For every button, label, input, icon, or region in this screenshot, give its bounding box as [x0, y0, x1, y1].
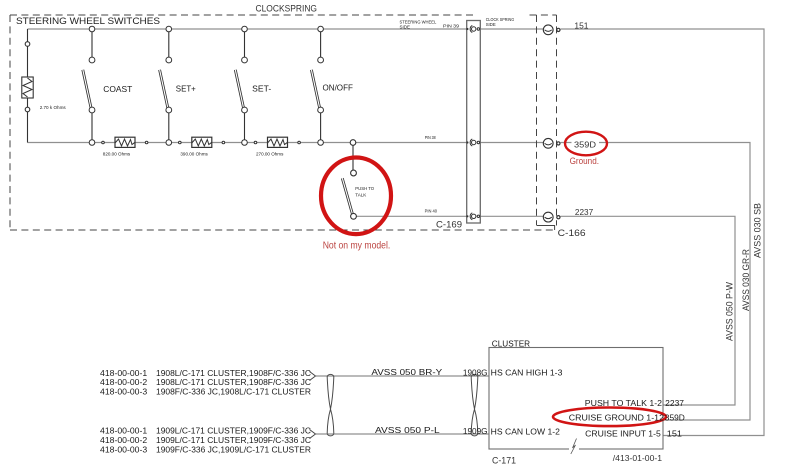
svg-text:/413-01-00-1: /413-01-00-1 — [613, 453, 662, 463]
svg-text:C-169: C-169 — [436, 220, 462, 230]
svg-text:SIDE: SIDE — [486, 22, 496, 27]
svg-text:Ground.: Ground. — [570, 156, 599, 166]
svg-text:C-166: C-166 — [558, 228, 586, 238]
svg-text:CLUSTER: CLUSTER — [492, 339, 531, 348]
svg-text:1909L/C-171 CLUSTER,1909F/C-33: 1909L/C-171 CLUSTER,1909F/C-336 JC — [156, 427, 311, 436]
svg-text:TALK: TALK — [355, 192, 367, 197]
svg-text:1908L/C-171 CLUSTER,1908F/C-33: 1908L/C-171 CLUSTER,1908F/C-336 JC — [156, 369, 311, 378]
svg-text:418-00-00-2: 418-00-00-2 — [100, 378, 148, 387]
svg-text:418-00-00-3: 418-00-00-3 — [100, 388, 148, 397]
svg-text:SIDE: SIDE — [400, 25, 411, 30]
svg-text:PIN 38: PIN 38 — [425, 135, 436, 140]
svg-text:PIN 39: PIN 39 — [443, 23, 460, 28]
svg-text:270.00 Ohms: 270.00 Ohms — [256, 152, 284, 158]
svg-text:1908L/C-171 CLUSTER,1908F/C-33: 1908L/C-171 CLUSTER,1908F/C-336 JC — [156, 378, 311, 387]
svg-text:AVSS 030 GR-R: AVSS 030 GR-R — [741, 249, 751, 311]
svg-text:COAST: COAST — [103, 84, 132, 94]
svg-text:359D: 359D — [665, 413, 685, 422]
svg-text:CRUISE INPUT 1-5: CRUISE INPUT 1-5 — [585, 429, 661, 438]
svg-text:CRUISE GROUND 1-12: CRUISE GROUND 1-12 — [569, 413, 665, 422]
svg-text:2237: 2237 — [665, 399, 684, 408]
svg-text:151: 151 — [667, 429, 683, 438]
svg-text:SET+: SET+ — [176, 84, 196, 94]
svg-text:151: 151 — [574, 21, 588, 31]
svg-text:1909F/C-336 JC,1909L/C-171 CLU: 1909F/C-336 JC,1909L/C-171 CLUSTER — [156, 446, 311, 455]
svg-text:418-00-00-2: 418-00-00-2 — [100, 436, 148, 445]
svg-text:ON/OFF: ON/OFF — [323, 83, 353, 93]
svg-text:1909G: 1909G — [463, 427, 488, 436]
svg-text:390.00 Ohms: 390.00 Ohms — [180, 152, 208, 158]
svg-text:418-00-00-1: 418-00-00-1 — [100, 369, 148, 378]
svg-text:418-00-00-1: 418-00-00-1 — [100, 427, 148, 436]
svg-text:1908F/C-336 JC,1908L/C-171 CLU: 1908F/C-336 JC,1908L/C-171 CLUSTER — [156, 388, 311, 397]
svg-text:PUSH TO: PUSH TO — [355, 186, 374, 191]
svg-text:820.00 Ohms: 820.00 Ohms — [103, 152, 131, 158]
svg-text:418-00-00-3: 418-00-00-3 — [100, 446, 148, 455]
svg-text:Not on my model.: Not on my model. — [323, 241, 391, 252]
svg-text:HS CAN HIGH 1-3: HS CAN HIGH 1-3 — [491, 368, 563, 377]
svg-text:AVSS 050 P-L: AVSS 050 P-L — [375, 426, 440, 435]
svg-text:AVSS 050 BR-Y: AVSS 050 BR-Y — [371, 368, 443, 377]
svg-text:1909L/C-171 CLUSTER,1909F/C-33: 1909L/C-171 CLUSTER,1909F/C-336 JC — [156, 436, 311, 445]
svg-text:1908G: 1908G — [463, 369, 488, 378]
svg-text:PIN 40: PIN 40 — [425, 208, 438, 213]
svg-text:AVSS 030 SB: AVSS 030 SB — [753, 203, 763, 258]
svg-text:2.70 k Ohms: 2.70 k Ohms — [40, 105, 67, 111]
svg-text:PUSH TO TALK 1-2: PUSH TO TALK 1-2 — [585, 399, 663, 408]
svg-text:SET-: SET- — [252, 84, 271, 94]
svg-text:CLOCKSPRING: CLOCKSPRING — [256, 4, 318, 14]
svg-text:HS CAN LOW 1-2: HS CAN LOW 1-2 — [491, 427, 561, 436]
svg-text:2237: 2237 — [575, 207, 594, 217]
svg-text:AVSS 050 P-W: AVSS 050 P-W — [725, 282, 735, 341]
svg-text:STEERING WHEEL SWITCHES: STEERING WHEEL SWITCHES — [16, 16, 160, 26]
svg-text:359D: 359D — [574, 140, 596, 150]
svg-text:C-171: C-171 — [492, 455, 516, 465]
